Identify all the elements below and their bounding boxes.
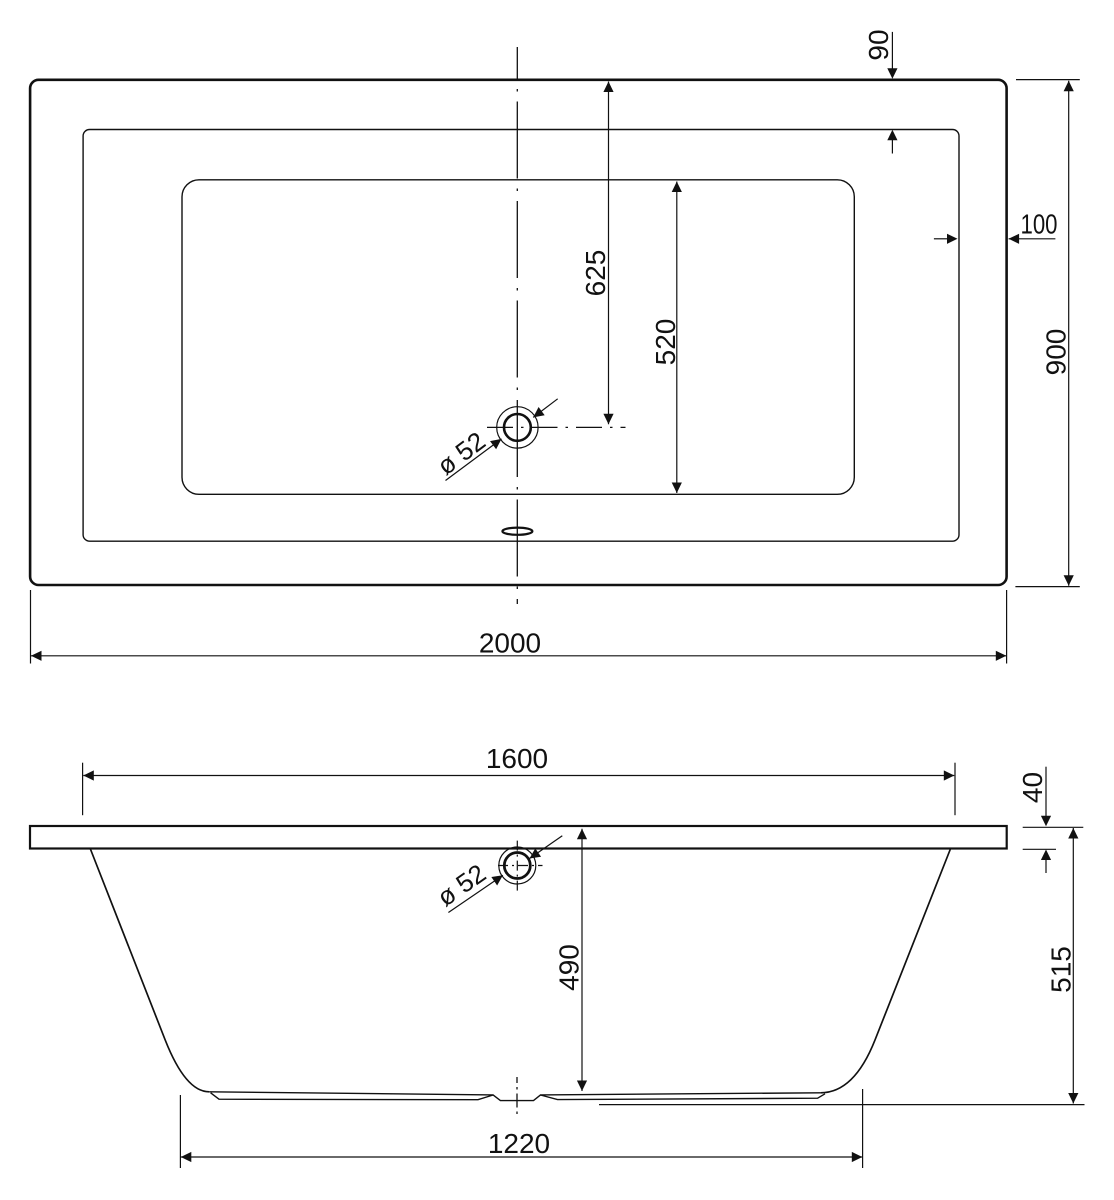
svg-text:40: 40 [1017, 772, 1048, 803]
svg-text:100: 100 [1021, 209, 1058, 240]
svg-text:1600: 1600 [486, 743, 548, 774]
svg-text:520: 520 [650, 319, 681, 366]
svg-text:625: 625 [580, 250, 611, 297]
svg-text:490: 490 [554, 944, 585, 991]
svg-text:2000: 2000 [479, 628, 541, 659]
svg-text:515: 515 [1046, 946, 1077, 993]
svg-text:1220: 1220 [488, 1128, 550, 1159]
svg-text:90: 90 [863, 29, 894, 60]
svg-text:900: 900 [1041, 329, 1072, 376]
